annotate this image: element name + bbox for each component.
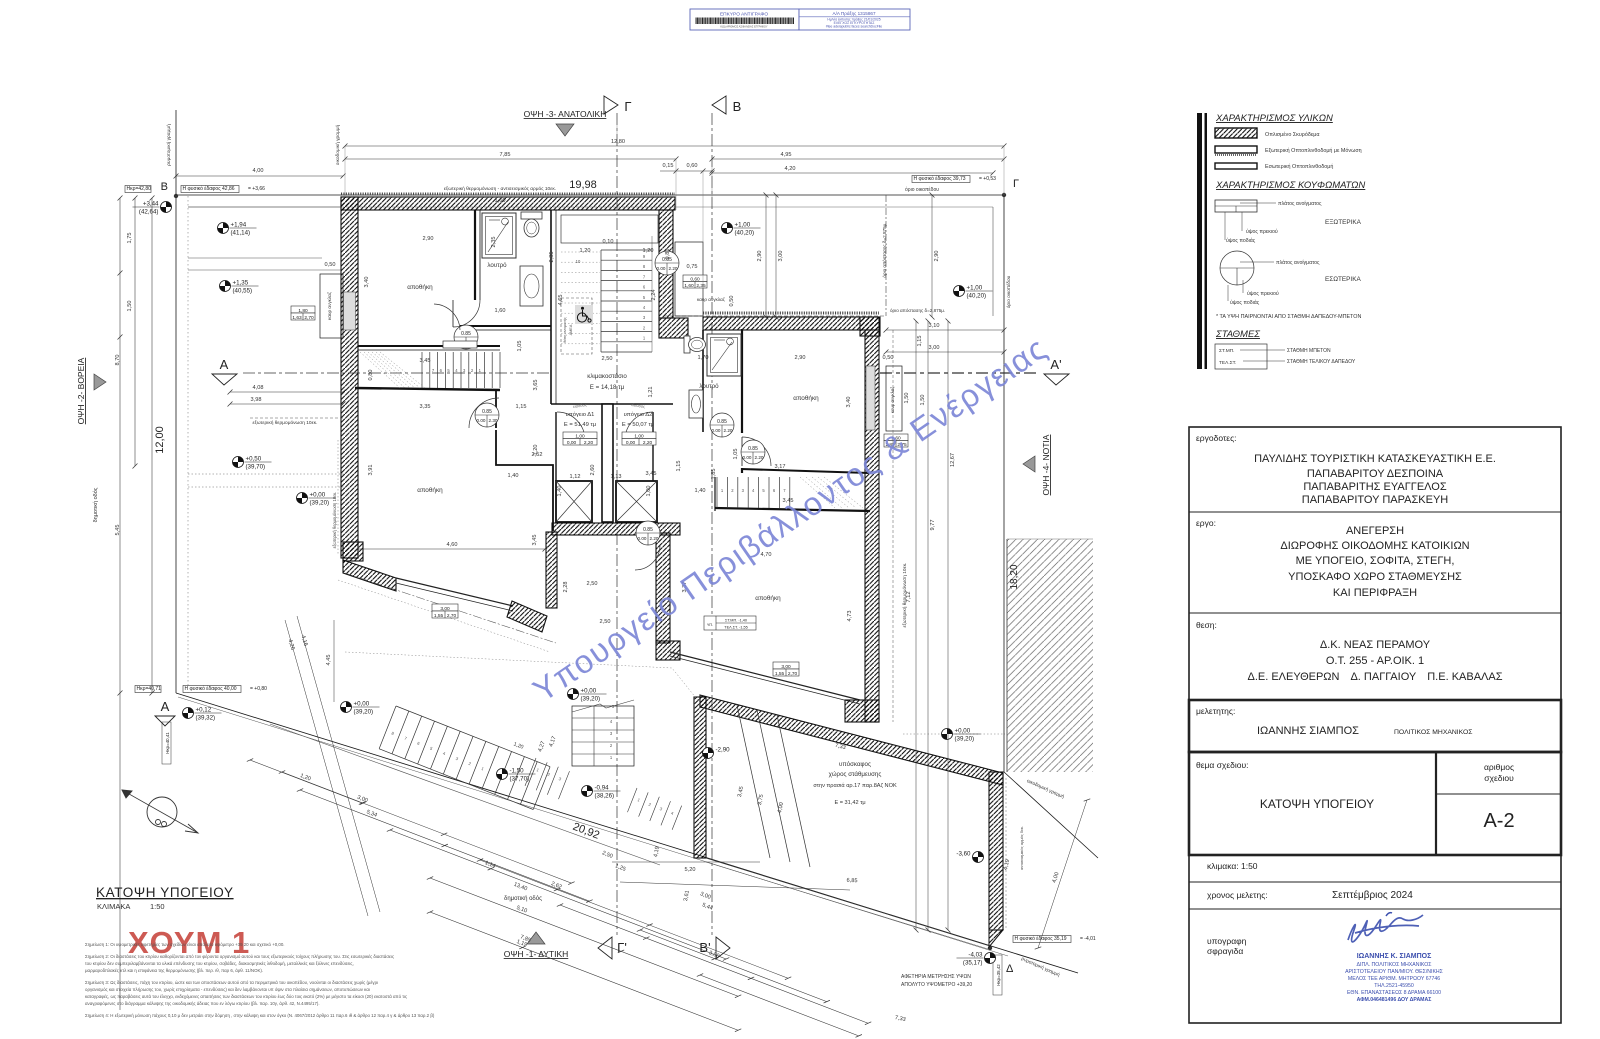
svg-text:πλάτος ανοίγματος: πλάτος ανοίγματος [1278, 200, 1322, 207]
svg-text:ΚΑΤΟΨΗ ΥΠΟΓΕΙΟΥ: ΚΑΤΟΨΗ ΥΠΟΓΕΙΟΥ [1260, 797, 1374, 811]
svg-text:αριθμος: αριθμος [1484, 762, 1514, 772]
svg-text:9,77: 9,77 [930, 520, 936, 531]
svg-text:ΚΩΔ ΑΡΙΘΜΟΣ ΑΣΦΑΛΕΙΑΣ ΕΓΓΡΑΦΟΥ: ΚΩΔ ΑΡΙΘΜΟΣ ΑΣΦΑΛΕΙΑΣ ΕΓΓΡΑΦΟΥ [720, 25, 767, 29]
svg-text:2,90: 2,90 [423, 236, 434, 242]
svg-text:(37,70): (37,70) [510, 776, 530, 783]
svg-text:εργοδοτες:: εργοδοτες: [1196, 433, 1237, 443]
svg-text:2.20: 2.20 [669, 266, 678, 271]
svg-text:υπόγειο Δ1: υπόγειο Δ1 [566, 411, 595, 418]
svg-text:ΙΩΑΝΝΗΣ ΣΙΑΜΠΟΣ: ΙΩΑΝΝΗΣ ΣΙΑΜΠΟΣ [1257, 725, 1359, 737]
svg-text:Η φυσικό έδαφος 40,00: Η φυσικό έδαφος 40,00 [185, 685, 237, 692]
svg-text:1,00: 1,00 [634, 433, 644, 439]
svg-text:3,00: 3,00 [929, 345, 940, 351]
svg-text:3,45: 3,45 [646, 471, 657, 477]
svg-text:του κτιρίου δεν συμπεριλαμβάνο: του κτιρίου δεν συμπεριλαμβάνονται τα υλ… [85, 961, 354, 966]
svg-text:+0,00: +0,00 [354, 701, 370, 708]
svg-text:εργο:: εργο: [1196, 518, 1216, 528]
svg-text:ΑΜΕΑ: ΑΜΕΑ [569, 324, 573, 335]
svg-text:1,55: 1,55 [434, 613, 444, 619]
svg-text:ρυμοτομική γραμμή: ρυμοτομική γραμμή [165, 124, 172, 166]
svg-text:1,63: 1,63 [292, 315, 302, 321]
svg-text:+0,00: +0,00 [955, 728, 971, 735]
svg-text:0.85: 0.85 [717, 419, 727, 425]
svg-text:ΠΑΠΑΒΑΡΙΤΗΣ ΕΥΑΓΓΕΛΟΣ: ΠΑΠΑΒΑΡΙΤΗΣ ΕΥΑΓΓΕΛΟΣ [1303, 481, 1446, 493]
svg-text:αντισεισμικός αρμός 5εκ.: αντισεισμικός αρμός 5εκ. [1019, 826, 1024, 870]
svg-text:* ΤΑ ΥΨΗ ΠΑΙΡΝΟΝΤΑΙ ΑΠΟ ΣΤΑΘΜΗ: * ΤΑ ΥΨΗ ΠΑΙΡΝΟΝΤΑΙ ΑΠΟ ΣΤΑΘΜΗ ΔΑΠΕΔΟΥ-Μ… [1216, 314, 1361, 320]
svg-text:ΣΤΑΘΜΕΣ: ΣΤΑΘΜΕΣ [1215, 329, 1260, 340]
svg-text:Σημείωση 1: Οι υψομετρικές: Σημείωση 1: Οι υψομετρικές αφετηρίες των… [85, 942, 285, 947]
svg-text:ΜΕΛΟΣ ΤΕΕ ΑΡΙΘΜ. ΜΗΤΡΩΟΥ 67746: ΜΕΛΟΣ ΤΕΕ ΑΡΙΘΜ. ΜΗΤΡΩΟΥ 67746 [1348, 976, 1440, 982]
svg-text:1,13: 1,13 [611, 474, 622, 480]
svg-text:1,15: 1,15 [917, 336, 923, 347]
svg-text:Β: Β [161, 181, 168, 193]
svg-text:(42,64): (42,64) [139, 209, 159, 216]
svg-text:2,28: 2,28 [563, 582, 569, 593]
svg-text:Ο.Τ. 255 - ΑΡ.ΟΙΚ. 1: Ο.Τ. 255 - ΑΡ.ΟΙΚ. 1 [1326, 655, 1424, 667]
svg-text:σφραγιδα: σφραγιδα [1207, 946, 1243, 956]
svg-text:0,10: 0,10 [603, 239, 614, 245]
svg-text:ΕΘΝ. ΕΠΑΝΑΣΤΑΣΕΩΣ 8 ΔΡΑΜΑ 6610: ΕΘΝ. ΕΠΑΝΑΣΤΑΣΕΩΣ 8 ΔΡΑΜΑ 66100 [1347, 990, 1441, 996]
svg-text:(38,26): (38,26) [595, 793, 615, 800]
svg-text:0,50: 0,50 [883, 355, 894, 361]
svg-text:όριο οικοπέδου: όριο οικοπέδου [905, 186, 939, 193]
svg-text:0,60: 0,60 [687, 163, 698, 169]
svg-text:θεμα σχεδιου:: θεμα σχεδιου: [1196, 760, 1249, 770]
svg-text:ΥΠΟΣΚΑΦΟ ΧΩΡΟ ΣΤΑΘΜΕΥΣΗΣ: ΥΠΟΣΚΑΦΟ ΧΩΡΟ ΣΤΑΘΜΕΥΣΗΣ [1288, 571, 1462, 583]
svg-text:3,00: 3,00 [781, 664, 791, 670]
svg-text:ΧΑΡΑΚΤΗΡΙΣΜΟΣ ΚΟΥΦΩΜΑΤΩΝ: ΧΑΡΑΚΤΗΡΙΣΜΟΣ ΚΟΥΦΩΜΑΤΩΝ [1215, 180, 1365, 191]
svg-text:ΙΩΑΝΝΗΣ Κ. ΣΙΑΜΠΟΣ: ΙΩΑΝΝΗΣ Κ. ΣΙΑΜΠΟΣ [1357, 953, 1432, 960]
svg-text:0,60: 0,60 [690, 276, 700, 282]
svg-text:Β: Β [733, 99, 742, 114]
svg-text:7,12: 7,12 [906, 592, 912, 603]
svg-text:2.30: 2.30 [489, 418, 498, 423]
svg-text:1,21: 1,21 [648, 387, 654, 398]
svg-text:όριο απόστασης δ=2,875μ.: όριο απόστασης δ=2,875μ. [881, 222, 887, 277]
svg-text:1,85: 1,85 [711, 469, 717, 480]
svg-text:0.00: 0.00 [657, 266, 666, 271]
svg-text:+1,35: +1,35 [233, 280, 249, 287]
svg-text:1,80: 1,80 [298, 308, 308, 314]
svg-text:0.85: 0.85 [461, 331, 471, 337]
svg-text:1,50: 1,50 [127, 301, 133, 312]
svg-text:1,40: 1,40 [557, 486, 563, 497]
svg-text:1,20: 1,20 [580, 248, 591, 254]
svg-text:ΟΨΗ -3- ΑΝΑΤΟΛΙΚΗ: ΟΨΗ -3- ΑΝΑΤΟΛΙΚΗ [524, 109, 607, 119]
svg-text:3,40: 3,40 [846, 397, 852, 408]
svg-text:εξωτερική θερμομόνωση 10εκ.: εξωτερική θερμομόνωση 10εκ. [332, 492, 337, 549]
svg-text:2,70: 2,70 [788, 671, 798, 677]
svg-text:3,45: 3,45 [420, 358, 431, 364]
svg-text:+1,94: +1,94 [231, 222, 247, 229]
svg-text:+0,00: +0,00 [310, 492, 326, 499]
svg-text:(40,55): (40,55) [233, 288, 253, 295]
svg-text:ΠΑΠΑΒΑΡΙΤΟΥ ΠΑΡΑΣΚΕΥΗ: ΠΑΠΑΒΑΡΙΤΟΥ ΠΑΡΑΣΚΕΥΗ [1302, 494, 1448, 506]
svg-text:ΕΞΩΤΕΡΙΚΑ: ΕΞΩΤΕΡΙΚΑ [1325, 219, 1362, 226]
svg-text:= +0,53: = +0,53 [979, 176, 996, 182]
svg-text:2,70: 2,70 [304, 315, 314, 321]
svg-text:-3,60: -3,60 [956, 851, 971, 858]
svg-text:εξωτερική θερμομόνωση - αντισε: εξωτερική θερμομόνωση - αντισεισμικός αρ… [444, 185, 556, 192]
svg-text:1,60: 1,60 [684, 283, 694, 289]
svg-text:0.00: 0.00 [743, 455, 752, 460]
svg-text:-4,03: -4,03 [968, 952, 983, 959]
svg-text:+0,50: +0,50 [246, 456, 262, 463]
svg-text:υπόσκαφος: υπόσκαφος [839, 761, 871, 768]
svg-text:ΔΙΩΡΟΦΗΣ ΟΙΚΟΔΟΜΗΣ ΚΑΤΟΙΚΙΩΝ: ΔΙΩΡΟΦΗΣ ΟΙΚΟΔΟΜΗΣ ΚΑΤΟΙΚΙΩΝ [1280, 540, 1469, 552]
svg-text:4,73: 4,73 [847, 611, 853, 622]
svg-text:E = 14,18 τμ: E = 14,18 τμ [590, 384, 625, 391]
svg-text:λουτρό: λουτρό [487, 262, 507, 269]
svg-text:λουτρό: λουτρό [699, 383, 719, 390]
svg-text:1,60: 1,60 [495, 308, 506, 314]
svg-text:5,45: 5,45 [115, 525, 121, 536]
svg-text:6,85: 6,85 [846, 878, 857, 884]
svg-text:ΟΨΗ -1- ΔΥΤΙΚΗ: ΟΨΗ -1- ΔΥΤΙΚΗ [504, 949, 569, 959]
svg-text:ΣΤ.ΜΠ. -1,40: ΣΤ.ΜΠ. -1,40 [725, 619, 747, 623]
svg-text:αποθήκη: αποθήκη [407, 284, 433, 291]
svg-text:19,98: 19,98 [569, 179, 597, 191]
svg-text:Γ: Γ [624, 99, 631, 114]
svg-text:+0,12: +0,12 [196, 707, 212, 714]
svg-text:(40,20): (40,20) [735, 230, 755, 237]
svg-text:Δ: Δ [1006, 963, 1014, 975]
svg-text:δημοτική οδός: δημοτική οδός [504, 895, 542, 902]
svg-text:ΣΤΑΘΜΗ ΜΠΕΤΟΝ: ΣΤΑΘΜΗ ΜΠΕΤΟΝ [1287, 348, 1331, 354]
svg-text:3,65: 3,65 [533, 380, 539, 391]
svg-text:(40,20): (40,20) [967, 293, 987, 300]
svg-text:3,17: 3,17 [775, 464, 786, 470]
svg-text:3,00: 3,00 [440, 606, 450, 612]
svg-text:0.00: 0.00 [638, 536, 647, 541]
svg-text:4,95: 4,95 [781, 152, 792, 158]
svg-text:3,00: 3,00 [778, 251, 784, 262]
svg-text:2,50: 2,50 [587, 581, 598, 587]
svg-text:ΑΝΕΓΕΡΣΗ: ΑΝΕΓΕΡΣΗ [1346, 525, 1404, 537]
svg-text:ύψος ποδιάς: ύψος ποδιάς [1230, 299, 1260, 306]
svg-text:8,70: 8,70 [115, 355, 121, 366]
svg-text:-1,50: -1,50 [510, 768, 525, 775]
svg-text:ΑΦΜ.046481496 ΔΟΥ ΔΡΑΜΑΣ: ΑΦΜ.046481496 ΔΟΥ ΔΡΑΜΑΣ [1357, 997, 1432, 1003]
svg-text:μαρμαροδπλακές κτλ και η επιφά: μαρμαροδπλακές κτλ και η επιφάνεια της θ… [85, 968, 263, 973]
svg-text:οργανισμός και στοιχεία πλήρωσ: οργανισμός και στοιχεία πλήρωσης του, χω… [85, 987, 370, 992]
svg-text:2,90: 2,90 [757, 251, 763, 262]
svg-text:0,50: 0,50 [729, 296, 735, 307]
svg-text:κουρ ανγκλαζ: κουρ ανγκλαζ [890, 387, 895, 413]
svg-text:2,70: 2,70 [447, 613, 457, 619]
svg-text:ΑΡΙΣΤΟΤΕΛΕΙΟΥ ΠΑΝ/ΜΙΟΥ. ΘΕΣ/ΝΙ: ΑΡΙΣΤΟΤΕΛΕΙΟΥ ΠΑΝ/ΜΙΟΥ. ΘΕΣ/ΝΙΚΗΣ [1345, 969, 1443, 975]
svg-text:0,50: 0,50 [325, 262, 336, 268]
svg-text:0,80: 0,80 [665, 249, 671, 260]
svg-text:= -4,01: = -4,01 [1080, 936, 1096, 942]
svg-text:E = 50,07 τμ: E = 50,07 τμ [622, 422, 654, 428]
svg-text:18,20: 18,20 [1009, 564, 1020, 589]
svg-text:12,67: 12,67 [950, 453, 956, 467]
svg-text:αποθήκη: αποθήκη [793, 395, 819, 402]
svg-text:Hκρ=42,80: Hκρ=42,80 [127, 186, 152, 192]
svg-text:Εσωτερική Οπτοπλινθοδομή: Εσωτερική Οπτοπλινθοδομή [1265, 163, 1333, 170]
svg-text:1,40: 1,40 [508, 473, 519, 479]
svg-text:ΤΕΛ.ΣΤ.: ΤΕΛ.ΣΤ. [1219, 360, 1236, 366]
svg-text:Η φυσικό έδαφος 39,73: Η φυσικό έδαφος 39,73 [914, 175, 966, 182]
svg-text:0.85: 0.85 [748, 446, 758, 452]
svg-text:δημοτική οδός: δημοτική οδός [92, 487, 99, 522]
svg-text:0.85: 0.85 [482, 409, 492, 415]
svg-text:+3,44: +3,44 [143, 201, 159, 208]
svg-text:2,24: 2,24 [651, 290, 657, 301]
svg-text:1,15: 1,15 [516, 404, 527, 410]
svg-text:4,60: 4,60 [447, 542, 458, 548]
svg-text:σχεδιου: σχεδιου [1484, 773, 1514, 783]
svg-text:κλιμακοστάσιο: κλιμακοστάσιο [587, 373, 627, 380]
svg-text:0.00: 0.00 [712, 428, 721, 433]
svg-text:ΣΤΑΘΜΗ ΤΕΛΙΚΟΥ ΔΑΠΕΔΟΥ: ΣΤΑΘΜΗ ΤΕΛΙΚΟΥ ΔΑΠΕΔΟΥ [1287, 359, 1356, 365]
svg-text:2,35: 2,35 [696, 283, 706, 289]
svg-text:4,45: 4,45 [326, 655, 332, 666]
svg-text:1,75: 1,75 [127, 233, 133, 244]
svg-text:ΠΑΠΑΒΑΡΙΤΟΥ ΔΕΣΠΟΙΝΑ: ΠΑΠΑΒΑΡΙΤΟΥ ΔΕΣΠΟΙΝΑ [1307, 468, 1444, 480]
svg-text:E = 51,49 τμ: E = 51,49 τμ [564, 422, 596, 428]
svg-text:(39,70): (39,70) [246, 464, 266, 471]
svg-text:Δ.Κ. ΝΕΑΣ ΠΕΡΑΜΟΥ: Δ.Κ. ΝΕΑΣ ΠΕΡΑΜΟΥ [1320, 639, 1431, 651]
svg-text:Οπλισμένο Σκυρόδεμα: Οπλισμένο Σκυρόδεμα [1265, 131, 1320, 138]
svg-text:0,00: 0,00 [567, 440, 577, 446]
svg-text:ΤΗΛ.2521-45950: ΤΗΛ.2521-45950 [1374, 983, 1414, 989]
svg-text:2,90: 2,90 [934, 251, 940, 262]
svg-text:αποθήκη: αποθήκη [417, 487, 443, 494]
svg-text:ΣΤ.ΜΠ.: ΣΤ.ΜΠ. [1219, 348, 1235, 354]
svg-text:(39,20): (39,20) [581, 696, 601, 703]
svg-text:ΕΠΚΥΡΟ ΑΝΤΙΓΡΑΦΟ: ΕΠΚΥΡΟ ΑΝΤΙΓΡΑΦΟ [720, 12, 768, 18]
svg-text:χώρος στάθμευσης: χώρος στάθμευσης [829, 771, 882, 778]
svg-text:ΟΨΗ -4- ΝΟΤΙΑ: ΟΨΗ -4- ΝΟΤΙΑ [1041, 434, 1051, 495]
svg-text:2,50: 2,50 [602, 356, 613, 362]
svg-text:ΑΠΟΛΥΤΟ ΥΨΟΜΕΤΡΟ +39,20: ΑΠΟΛΥΤΟ ΥΨΟΜΕΤΡΟ +39,20 [901, 982, 972, 988]
svg-text:12,80: 12,80 [611, 139, 625, 145]
svg-text:A: A [220, 357, 229, 372]
svg-text:4,20: 4,20 [785, 166, 796, 172]
svg-text:1,70: 1,70 [698, 355, 709, 361]
svg-text:2,60: 2,60 [590, 465, 596, 476]
svg-text:1:50: 1:50 [150, 902, 165, 911]
svg-text:2,35: 2,35 [549, 252, 555, 263]
svg-text:#tee adeiapublic faces searchD: #tee adeiapublic faces searchDocFile [826, 25, 882, 29]
svg-text:= +0,80: = +0,80 [250, 686, 267, 692]
svg-text:Hκρ=35,42: Hκρ=35,42 [996, 964, 1001, 986]
svg-text:3,35: 3,35 [420, 404, 431, 410]
svg-text:-0,94: -0,94 [595, 785, 610, 792]
svg-text:ΚΑΙ ΠΕΡΙΦΡΑΞΗ: ΚΑΙ ΠΕΡΙΦΡΑΞΗ [1333, 587, 1417, 599]
svg-text:7,85: 7,85 [500, 152, 511, 158]
svg-text:ΧΑΡΑΚΤΗΡΙΣΜΟΣ ΥΛΙΚΩΝ: ΧΑΡΑΚΤΗΡΙΣΜΟΣ ΥΛΙΚΩΝ [1215, 113, 1333, 124]
svg-text:2,35: 2,35 [491, 237, 497, 248]
svg-text:Σημείωση 3: Ως διαστάσεις,: Σημείωση 3: Ως διαστάσεις, πάχη του κτιρ… [85, 980, 378, 985]
svg-text:ΚΛΙΜΑΚΑ: ΚΛΙΜΑΚΑ [97, 902, 130, 911]
svg-text:0,15: 0,15 [663, 163, 674, 169]
svg-text:Δ.Ε. ΕΛΕΥΘΕΡΩΝ Δ. ΠΑΓΓΑΙΟΥ Π.Ε: Δ.Ε. ΕΛΕΥΘΕΡΩΝ Δ. ΠΑΓΓΑΙΟΥ Π.Ε. ΚΑΒΑΛΑΣ [1247, 671, 1502, 683]
svg-text:1,55: 1,55 [775, 671, 785, 677]
svg-text:όριο οικοπέδου: όριο οικοπέδου [1005, 275, 1012, 308]
svg-text:E = 31,42 τμ: E = 31,42 τμ [834, 800, 865, 806]
svg-text:+1,00: +1,00 [967, 285, 983, 292]
svg-text:κλιμακα: 1:50: κλιμακα: 1:50 [1207, 861, 1258, 871]
svg-text:1,00: 1,00 [646, 486, 652, 497]
svg-text:2,20: 2,20 [584, 440, 594, 446]
svg-text:ΠΟΛΙΤΙΚΟΣ ΜΗΧΑΝΙΚΟΣ: ΠΟΛΙΤΙΚΟΣ ΜΗΧΑΝΙΚΟΣ [1394, 729, 1473, 736]
svg-text:10: 10 [576, 259, 581, 264]
svg-text:ύψος ποδιάς: ύψος ποδιάς [1226, 237, 1256, 244]
svg-text:ΜΕ ΥΠΟΓΕΙΟ, ΣΟΦΙΤΑ, ΣΤΕΓΗ,: ΜΕ ΥΠΟΓΕΙΟ, ΣΟΦΙΤΑ, ΣΤΕΓΗ, [1296, 555, 1455, 567]
svg-text:3,40: 3,40 [364, 277, 370, 288]
svg-text:1,50: 1,50 [904, 393, 910, 404]
svg-text:ΠΑΥΛΙΔΗΣ ΤΟΥΡΙΣΤΙΚΗ ΚΑΤΑΣΚΕΥΑΣ: ΠΑΥΛΙΔΗΣ ΤΟΥΡΙΣΤΙΚΗ ΚΑΤΑΣΚΕΥΑΣΤΙΚΗ Ε.Ε. [1254, 453, 1496, 465]
svg-text:Σεπτέμβριος 2024: Σεπτέμβριος 2024 [1332, 889, 1413, 901]
svg-text:2,90: 2,90 [795, 355, 806, 361]
svg-text:Σημείωση 4: Η εξωτερική μόν: Σημείωση 4: Η εξωτερική μόνωση πάχους 0,… [85, 1013, 435, 1018]
svg-text:ΔΙΠΛ. ΠΟΛΙΤΙΚΟΣ ΜΗΧΑΝΙΚΟΣ: ΔΙΠΛ. ΠΟΛΙΤΙΚΟΣ ΜΗΧΑΝΙΚΟΣ [1357, 962, 1432, 968]
svg-text:Hκρ=40,71: Hκρ=40,71 [137, 686, 162, 692]
svg-text:Εξωτερική Οπτοπλινθοδομή με Μό: Εξωτερική Οπτοπλινθοδομή με Μόνωση [1265, 147, 1362, 154]
svg-text:2,52: 2,52 [532, 452, 543, 458]
svg-text:(39,20): (39,20) [310, 500, 330, 507]
svg-text:1,12: 1,12 [570, 474, 581, 480]
svg-text:υπόγειο Δ2: υπόγειο Δ2 [624, 411, 653, 418]
svg-text:2.20: 2.20 [724, 428, 733, 433]
svg-text:Σημείωση 2: Οι διαστάσεις τ: Σημείωση 2: Οι διαστάσεις του κτιρίου κα… [85, 954, 394, 959]
svg-text:0.00: 0.00 [477, 418, 486, 423]
svg-text:Hκρ=40,41: Hκρ=40,41 [165, 732, 170, 754]
svg-text:1,05: 1,05 [517, 341, 523, 352]
svg-text:3,10: 3,10 [929, 323, 940, 329]
svg-text:στην πρασιά αρ.17 παρ.8Αζ ΝΟΚ: στην πρασιά αρ.17 παρ.8Αζ ΝΟΚ [813, 782, 897, 789]
svg-text:μελετητης:: μελετητης: [1196, 706, 1235, 716]
svg-text:ύψος πρεκιού: ύψος πρεκιού [1246, 229, 1278, 235]
svg-text:1,15: 1,15 [676, 461, 682, 472]
svg-text:= +3,66: = +3,66 [248, 186, 265, 192]
svg-text:ΤΕΛ.ΣΤ. -1,55: ΤΕΛ.ΣΤ. -1,55 [724, 626, 747, 630]
svg-text:5,20: 5,20 [685, 867, 696, 873]
svg-text:(39,20): (39,20) [354, 709, 374, 716]
svg-text:12,00: 12,00 [154, 426, 166, 454]
svg-text:Α/Α Πράξης 1315867: Α/Α Πράξης 1315867 [833, 10, 876, 17]
svg-text:θεση:: θεση: [1196, 620, 1217, 630]
svg-text:3,98: 3,98 [251, 397, 262, 403]
svg-text:ΟΨΗ -2- ΒΟΡΕΙΑ: ΟΨΗ -2- ΒΟΡΕΙΑ [76, 357, 86, 424]
svg-text:Γ: Γ [1013, 178, 1019, 190]
svg-text:4,08: 4,08 [253, 385, 264, 391]
svg-text:1,00: 1,00 [575, 433, 585, 439]
svg-text:καταγραφές, ως παραβάσεις αυτά: καταγραφές, ως παραβάσεις αυτά του έλεγχ… [85, 994, 407, 999]
svg-text:ΚΑΤΟΨΗ ΥΠΟΓΕΙΟΥ: ΚΑΤΟΨΗ ΥΠΟΓΕΙΟΥ [96, 885, 234, 900]
svg-text:-2,90: -2,90 [716, 747, 731, 754]
svg-text:(39,32): (39,32) [196, 715, 216, 722]
svg-text:A: A [161, 699, 170, 714]
svg-text:+1,00: +1,00 [735, 222, 751, 229]
svg-text:ΕΣΩΤΕΡΙΚΑ: ΕΣΩΤΕΡΙΚΑ [1325, 276, 1361, 283]
svg-text:1,60: 1,60 [495, 198, 506, 204]
svg-text:0.85: 0.85 [643, 527, 653, 533]
svg-text:(35,17): (35,17) [963, 960, 983, 967]
svg-text:2.20: 2.20 [755, 455, 764, 460]
svg-text:3,91: 3,91 [368, 465, 374, 476]
svg-text:0,00: 0,00 [626, 440, 636, 446]
svg-text:ύψος πρεκιού: ύψος πρεκιού [1247, 291, 1279, 297]
svg-text:αποθήκη: αποθήκη [755, 595, 781, 602]
svg-text:4,65: 4,65 [558, 295, 564, 306]
svg-text:2.20: 2.20 [650, 536, 659, 541]
svg-text:1,05: 1,05 [733, 449, 739, 460]
svg-text:ΑΦΕΤΗΡΙΑ ΜΕΤΡΗΣΗΣ ΥΨΩΝ: ΑΦΕΤΗΡΙΑ ΜΕΤΡΗΣΗΣ ΥΨΩΝ [901, 974, 971, 980]
svg-text:1,40: 1,40 [695, 488, 706, 494]
svg-text:4,00: 4,00 [253, 168, 264, 174]
svg-text:όριο απόστασης δ=2,875μ.: όριο απόστασης δ=2,875μ. [890, 307, 945, 313]
svg-text:υπογραφη: υπογραφη [1207, 936, 1247, 946]
svg-text:πλάτος ανοίγματος: πλάτος ανοίγματος [1276, 259, 1320, 266]
svg-text:(39,20): (39,20) [955, 736, 975, 743]
svg-text:χρονος μελετης:: χρονος μελετης: [1207, 890, 1268, 900]
svg-text:+0,00: +0,00 [581, 688, 597, 695]
svg-text:1,20: 1,20 [643, 248, 654, 254]
svg-text:Η φυσικό έδαφος 35,19: Η φυσικό έδαφος 35,19 [1015, 935, 1067, 942]
svg-text:0,75: 0,75 [687, 264, 698, 270]
svg-text:ΥΠ.: ΥΠ. [707, 623, 713, 627]
svg-text:Α-2: Α-2 [1483, 810, 1514, 832]
svg-text:2,20: 2,20 [643, 440, 653, 446]
svg-text:3,45: 3,45 [532, 535, 538, 546]
svg-text:0,80: 0,80 [368, 370, 374, 381]
svg-text:οικοδομική γραμμή: οικοδομική γραμμή [334, 124, 341, 165]
svg-text:(41,14): (41,14) [231, 230, 251, 237]
svg-text:εξωτερική θερμομόνωση 10εκ.: εξωτερική θερμομόνωση 10εκ. [253, 419, 318, 426]
svg-text:Η φυσικό έδαφος 42,86: Η φυσικό έδαφος 42,86 [183, 185, 235, 192]
svg-text:αναγραφόμενες στο διάγραμμα κά: αναγραφόμενες στο διάγραμμα κάλυψης της … [85, 1001, 320, 1006]
svg-text:θέση αναμονής: θέση αναμονής [563, 317, 567, 343]
